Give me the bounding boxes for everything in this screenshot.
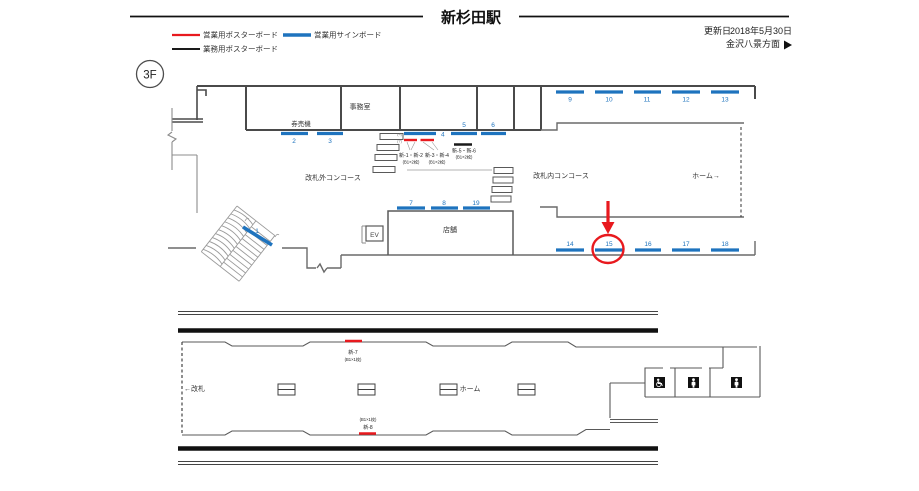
poster-size-shin5-6: (B1×2枚) [456,154,473,161]
sign-number-7: 7 [409,200,413,207]
track-lines [178,312,658,465]
poster-size-shin7: (B1×1枚) [345,356,362,363]
ticket-machine [377,145,399,151]
top-left-walls [172,86,206,122]
floor-badge: 3F [137,61,164,88]
tiny-label-bottom: (7) [397,139,403,144]
left-corridor-walls [168,108,197,213]
poster-label-shin3-4: 新-3・新-4 [425,152,449,159]
bench [518,384,535,395]
outer-bottom-walls [168,241,755,272]
sign-number-17: 17 [682,241,690,248]
track-rail-bottom-icon [178,462,658,465]
sign-number-11: 11 [644,97,651,104]
poster-label-shin5-6: 新-5・新-6 [452,148,476,155]
ticket-machines-label: 券売機 [291,119,311,128]
poster-label-shin8: 新-8 [363,424,373,431]
sign-number-3: 3 [328,138,332,145]
platform-label: ホーム [460,385,481,393]
tiny-label-top: (4) [397,132,403,137]
legend-label-poster-sales: 営業用ポスターボード [203,30,278,40]
ticket-machine [373,167,395,173]
sign-number-18: 18 [721,241,729,248]
bench [278,384,295,395]
sign-number-13: 13 [721,97,729,104]
legend-label-signboard: 営業用サインボード [314,30,382,40]
sign-number-4: 4 [441,132,445,139]
updated-date: 2018年5月30日 [730,25,792,36]
sign-number-6: 6 [491,122,495,129]
toilet-icon [731,377,742,388]
updated-row: 更新日 2018年5月30日 [704,25,792,36]
poster-label-shin1-2: 新-1・新-2 [399,152,423,159]
legend: 営業用ポスターボード 営業用サインボード 業務用ポスターボード [172,30,382,54]
restroom-walls [645,346,760,397]
sign-boards [243,92,739,250]
legend-label-poster-office: 業務用ポスターボード [203,44,278,54]
elevator-label: EV [370,232,379,239]
inside-concourse-label: 改札内コンコース [533,171,589,180]
direction-label: 金沢八景方面 [726,38,780,49]
platform-top-edge [182,342,757,347]
concourse-band-walls [540,123,744,217]
sign-numbers: 1 2 3 4 5 6 7 8 19 9 10 11 12 13 14 15 1… [255,97,729,249]
stairs [201,206,275,281]
direction-row: 金沢八景方面 [726,38,792,50]
lower-plan-labels: 新-7 (B1×1枚) (B1×1枚) 新-8 ←改札 ホーム [184,349,480,431]
sign-number-2: 2 [292,138,296,145]
highlight-board-15 [593,201,624,263]
platform-bottom-edge [182,430,610,436]
sign-number-12: 12 [682,97,690,104]
outside-concourse-label: 改札外コンコース [305,173,361,182]
header: 新杉田駅 更新日 2018年5月30日 金沢八景方面 [130,9,792,50]
direction-arrow-icon [784,41,792,50]
upper-plan-walls [168,86,755,272]
sign-number-1: 1 [255,228,259,235]
sign-number-8: 8 [442,200,446,207]
updated-label: 更新日 [704,25,731,36]
shop-label: 店舗 [443,225,457,234]
elevator-door-walls [362,226,366,243]
bench [440,384,457,395]
sign-number-16: 16 [644,241,652,248]
walkway-lines [610,383,658,423]
sign-number-9: 9 [568,97,572,104]
platform-direction-label: ホーム→ [692,172,720,180]
station-map-svg: 新杉田駅 更新日 2018年5月30日 金沢八景方面 営業用ポスターボード 営業… [0,0,919,491]
accessible-toilet-icon [654,377,665,388]
sign-number-5: 5 [462,122,466,129]
bench [358,384,375,395]
elevator: EV [362,226,383,243]
ticket-gate-row [491,168,513,203]
poster-leader-lines [407,142,438,150]
track-rail-top-icon [178,312,658,315]
ticket-machine [375,155,397,161]
floor-badge-label: 3F [143,70,156,82]
gate-direction-label: ←改札 [184,384,205,393]
ticket-gate [493,177,513,183]
sign-number-15: 15 [605,241,613,248]
ticket-gate [492,187,512,193]
page-title: 新杉田駅 [441,9,502,27]
station-map-page: 新杉田駅 更新日 2018年5月30日 金沢八景方面 営業用ポスターボード 営業… [0,0,919,491]
sign-number-10: 10 [605,97,613,104]
ticket-gate [491,196,511,202]
sign-number-14: 14 [566,241,574,248]
toilet-icon [688,377,699,388]
sign-number-19: 19 [472,200,480,207]
platform-benches [278,384,535,395]
office-label: 事務室 [350,102,371,111]
poster-size-shin1-2: (B1×2枚) [403,159,420,166]
poster-size-shin3-4: (B1×2枚) [429,159,446,166]
lower-plan: 新-7 (B1×1枚) (B1×1枚) 新-8 ←改札 ホーム [178,312,760,465]
highlight-arrow-head-icon [602,222,615,234]
poster-size-shin8: (B1×1枚) [360,416,377,423]
poster-label-shin7: 新-7 [348,349,358,356]
ticket-gate [494,168,513,174]
